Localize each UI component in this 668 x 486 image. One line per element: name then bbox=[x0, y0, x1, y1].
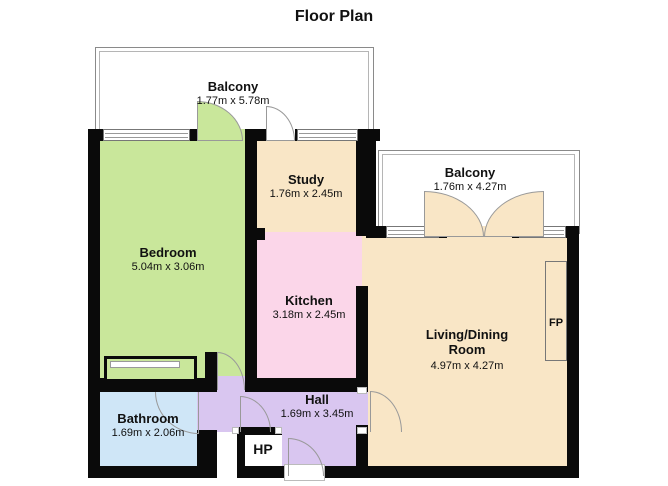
balcony-top-dims: 1.77m x 5.78m bbox=[197, 95, 270, 107]
exterior-recess bbox=[217, 432, 237, 481]
wall-kitchen-living bbox=[356, 286, 368, 391]
wall-study-right bbox=[356, 133, 376, 236]
window-pane bbox=[299, 133, 356, 138]
balcony-right-dims: 1.76m x 4.27m bbox=[434, 181, 507, 193]
study-label: Study bbox=[288, 173, 324, 187]
page-title: Floor Plan bbox=[295, 8, 373, 26]
hp-label: HP bbox=[253, 442, 272, 456]
wall-right bbox=[567, 226, 579, 478]
hall-dims: 1.69m x 3.45m bbox=[281, 408, 354, 420]
floor-plan-canvas: Floor Plan Balcony 1.77m x 5.78m Balcony… bbox=[0, 0, 668, 486]
hall-label: Hall bbox=[305, 393, 329, 407]
living-label-line2: Room bbox=[449, 343, 486, 357]
fireplace-box bbox=[545, 261, 567, 361]
bedroom-wardrobe bbox=[104, 356, 197, 382]
window-pane bbox=[105, 133, 188, 138]
living-dims: 4.97m x 4.27m bbox=[431, 360, 504, 372]
hall-living-doorway-floor bbox=[356, 391, 368, 427]
bathroom-dims: 1.69m x 2.06m bbox=[112, 427, 185, 439]
hp-door-jamb-left bbox=[232, 427, 239, 434]
wall-bottom bbox=[88, 466, 579, 478]
wall-study-kitchen-stub bbox=[245, 228, 265, 240]
study-dims: 1.76m x 2.45m bbox=[270, 188, 343, 200]
bedroom-label: Bedroom bbox=[139, 246, 196, 260]
wall-bedroom-door-jamb bbox=[205, 352, 217, 392]
kitchen-label: Kitchen bbox=[285, 294, 333, 308]
bathroom-label: Bathroom bbox=[117, 412, 178, 426]
bedroom-window bbox=[103, 129, 190, 141]
balcony-top-label: Balcony bbox=[208, 80, 259, 94]
study-window bbox=[297, 129, 358, 141]
bedroom-dims: 5.04m x 3.06m bbox=[132, 261, 205, 273]
wall-left bbox=[88, 129, 100, 478]
wall-bathroom-right bbox=[197, 430, 217, 467]
doorway-jamb-bottom bbox=[357, 427, 367, 434]
balcony-right-label: Balcony bbox=[445, 166, 496, 180]
wall-bedroom-study bbox=[245, 129, 257, 384]
fp-label: FP bbox=[549, 316, 563, 330]
hp-door-jamb-right bbox=[275, 427, 282, 434]
doorway-jamb-top bbox=[357, 387, 367, 394]
kitchen-dims: 3.18m x 2.45m bbox=[273, 309, 346, 321]
living-label-line1: Living/Dining bbox=[426, 328, 508, 342]
wall-kitchen-bottom bbox=[245, 378, 368, 392]
wardrobe-sliding-door bbox=[110, 361, 180, 368]
